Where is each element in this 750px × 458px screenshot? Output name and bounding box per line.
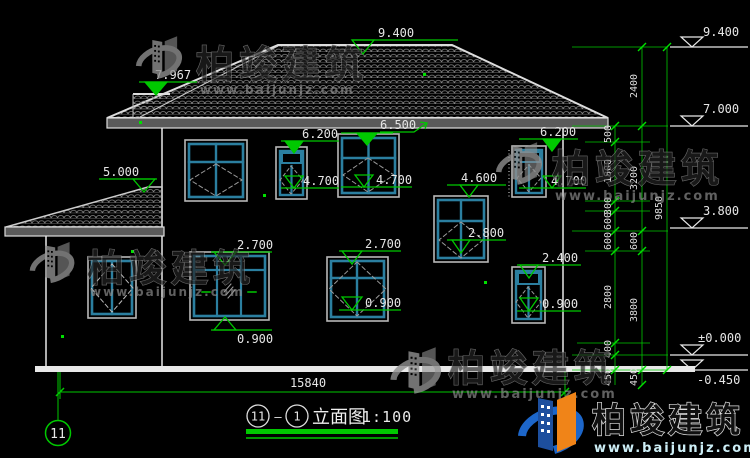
svg-text:2800: 2800 [603,285,614,309]
title-scale: 1:100 [362,408,412,426]
brand-logo-icon [394,347,439,391]
svg-text:2.800: 2.800 [468,226,504,240]
svg-text:9.400: 9.400 [703,25,739,39]
elev-0000: ±0.000 [670,331,748,355]
svg-text:0.900: 0.900 [237,332,273,346]
svg-text:4.700: 4.700 [376,173,412,187]
svg-text:450: 450 [629,368,640,386]
marker-c-sill: 4.700 [341,173,412,187]
elev-7000: 7.000 [670,102,748,126]
drawing-title: 11 — 1 立面图 1:100 [246,405,412,438]
title-axis-left: 11 [251,410,265,424]
brand-logo-icon [139,36,180,76]
svg-text:6.200: 6.200 [540,125,576,139]
svg-text:柏竣建筑: 柏竣建筑 [592,401,744,441]
svg-text:2.400: 2.400 [542,251,578,265]
cad-canvas: 9.400 7.967 5.000 6.500 6.200 6.200 4.70… [0,0,750,458]
svg-text:600: 600 [603,212,614,230]
elevation-drawing: 9.400 7.967 5.000 6.500 6.200 6.200 4.70… [0,0,750,458]
elev-9400: 9.400 [670,25,748,47]
watermark-mid-right: 柏竣建筑 www.baijunjz.com [499,142,724,204]
window-b [276,147,307,199]
window-g [327,257,388,321]
marker-b-head: 6.200 [281,127,339,153]
marker-i-sill: 0.900 [517,297,581,311]
window-i [512,267,545,323]
svg-text:www.baijunjz.com: www.baijunjz.com [555,189,720,204]
svg-text:柏竣建筑: 柏竣建筑 [448,347,616,390]
svg-text:3800: 3800 [629,298,640,322]
svg-text:2400: 2400 [629,74,640,98]
svg-text:6.200: 6.200 [302,127,338,141]
svg-text:0.900: 0.900 [365,296,401,310]
svg-text:7.000: 7.000 [703,102,739,116]
svg-text:4.700: 4.700 [303,174,339,188]
watermark-bottom-center: 柏竣建筑 www.baijunjz.com [394,347,617,402]
title-axis-right: 1 [293,410,300,424]
elev-neg0450: -0.450 [670,360,748,387]
porch-roof [6,187,162,227]
svg-text:600: 600 [629,232,640,250]
svg-text:www.baijunjz.com: www.baijunjz.com [200,83,355,97]
svg-text:6.500: 6.500 [380,118,416,132]
right-dimension-chains: 500 1800 300 600 600 2800 400 450 2400 3… [572,43,671,389]
svg-text:9.400: 9.400 [378,26,414,40]
marker-i-head: 2.400 [517,251,581,278]
svg-text:0.900: 0.900 [542,297,578,311]
svg-text:±0.000: ±0.000 [698,331,741,345]
svg-text:柏竣建筑: 柏竣建筑 [552,147,724,191]
title-text: 立面图 [312,407,366,428]
svg-text:www.baijunjz.com: www.baijunjz.com [452,387,617,402]
eave-fascia [107,118,608,128]
svg-text:柏竣建筑: 柏竣建筑 [87,247,255,290]
grid-bubble-label: 11 [50,427,66,442]
porch-fascia [5,227,164,236]
svg-text:600: 600 [603,232,614,250]
svg-text:www.baijunjz.com: www.baijunjz.com [90,285,245,299]
brand-logo-icon [499,142,540,182]
right-elevation-symbols: 9.400 7.000 3.800 ±0.000 -0.450 [670,25,748,387]
marker-f-sill: 0.900 [211,317,273,346]
total-width-dim: 15840 [290,376,326,390]
svg-text:柏竣建筑: 柏竣建筑 [196,43,368,87]
window-a [185,140,247,201]
title-dash: — [274,410,282,424]
title-underline-thick [246,429,398,434]
svg-text:-0.450: -0.450 [697,373,740,387]
svg-text:4.600: 4.600 [461,171,497,185]
brand-logo-icon [32,242,71,280]
svg-text:2.700: 2.700 [365,237,401,251]
chain-labels: 500 1800 300 600 600 2800 400 450 2400 3… [603,74,665,386]
svg-text:3.800: 3.800 [703,204,739,218]
marker-b-sill: 4.700 [281,174,339,188]
elev-3800: 3.800 [670,204,748,228]
watermark-top-left: 柏竣建筑 www.baijunjz.com [139,36,368,97]
svg-text:500: 500 [603,125,614,143]
svg-text:5.000: 5.000 [103,165,139,179]
marker-d-head: 4.600 [447,171,506,197]
marker-d-sill: 2.800 [447,226,506,253]
svg-text:www.baijunjz.com: www.baijunjz.com [594,441,750,456]
watermark-mid-left: 柏竣建筑 www.baijunjz.com [32,242,255,299]
